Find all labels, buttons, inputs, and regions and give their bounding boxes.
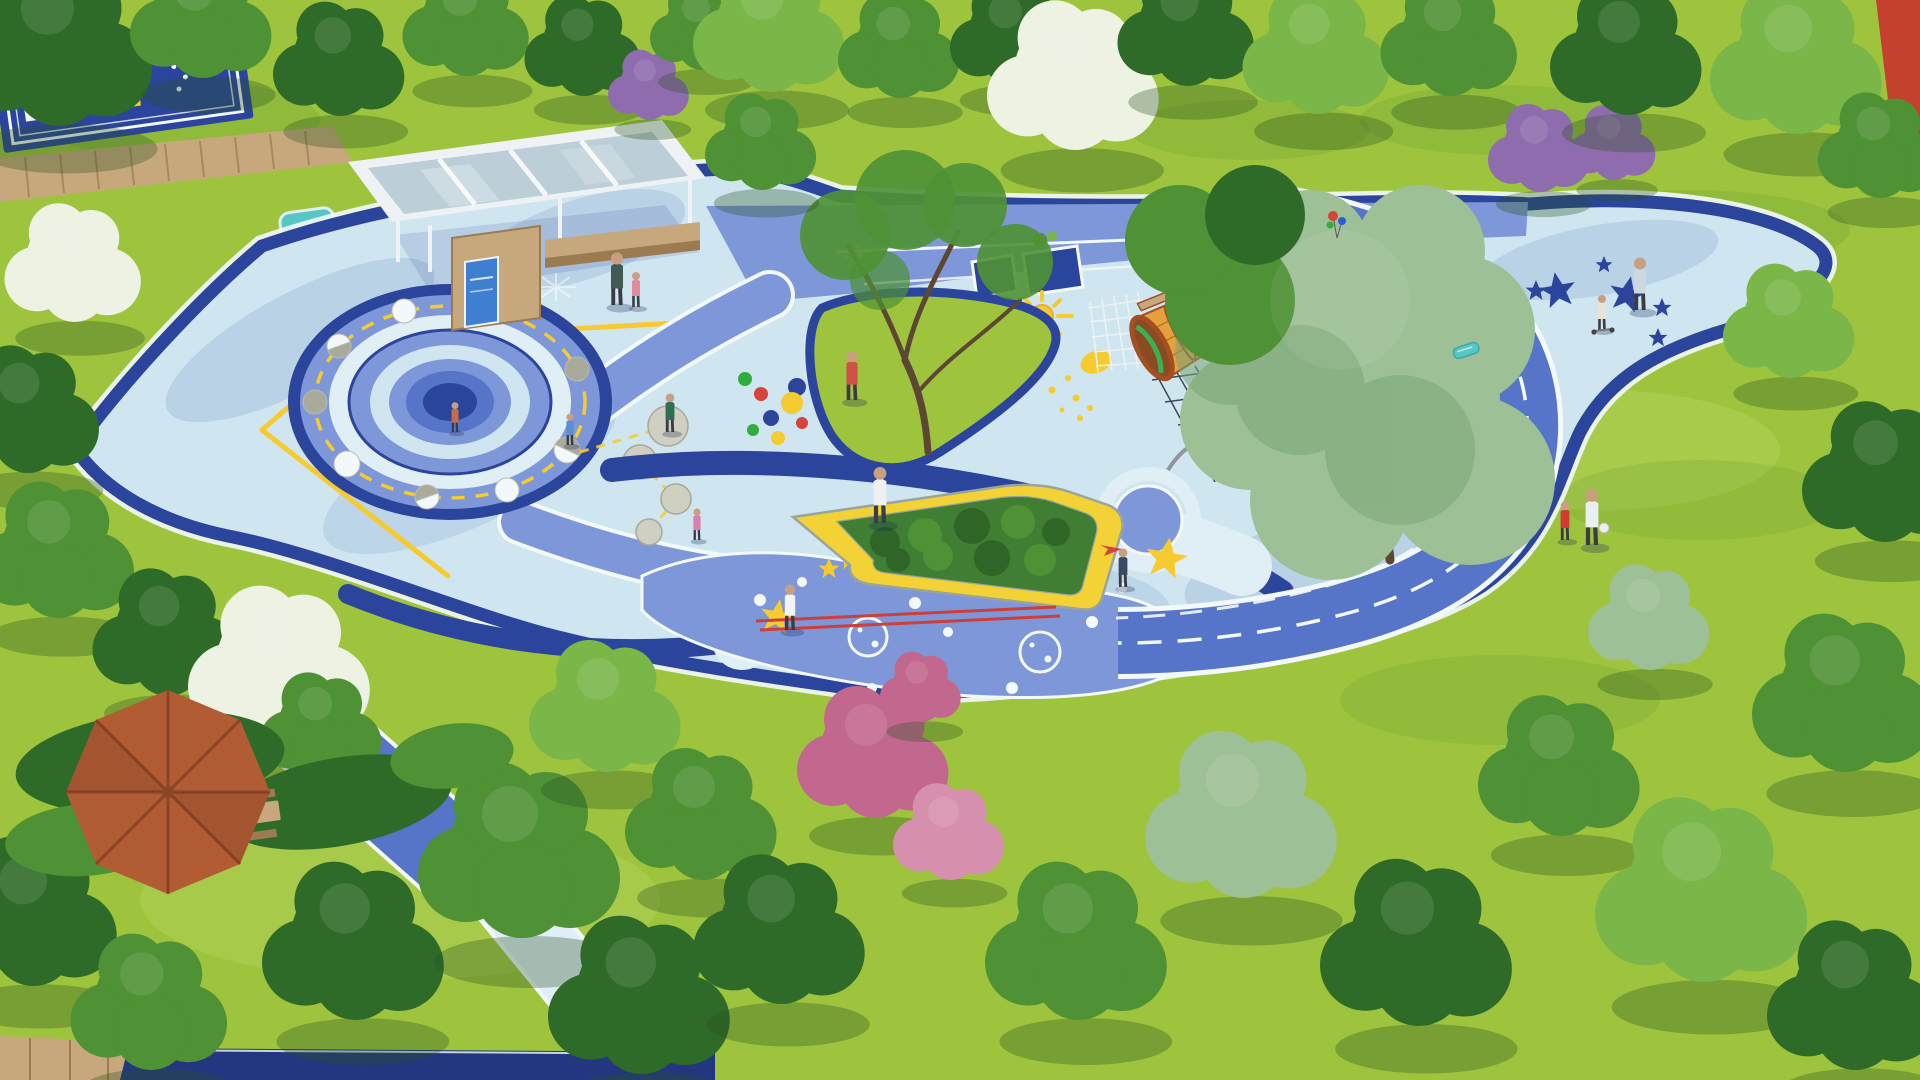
info-kiosk [452, 226, 540, 330]
planet-mound [288, 284, 612, 520]
shopping-bag [1599, 523, 1609, 533]
playground-render-stage [0, 0, 1920, 1080]
playground-aerial-render [0, 0, 1920, 1080]
forecourt-star [536, 273, 576, 301]
shade-umbrella [66, 690, 270, 894]
